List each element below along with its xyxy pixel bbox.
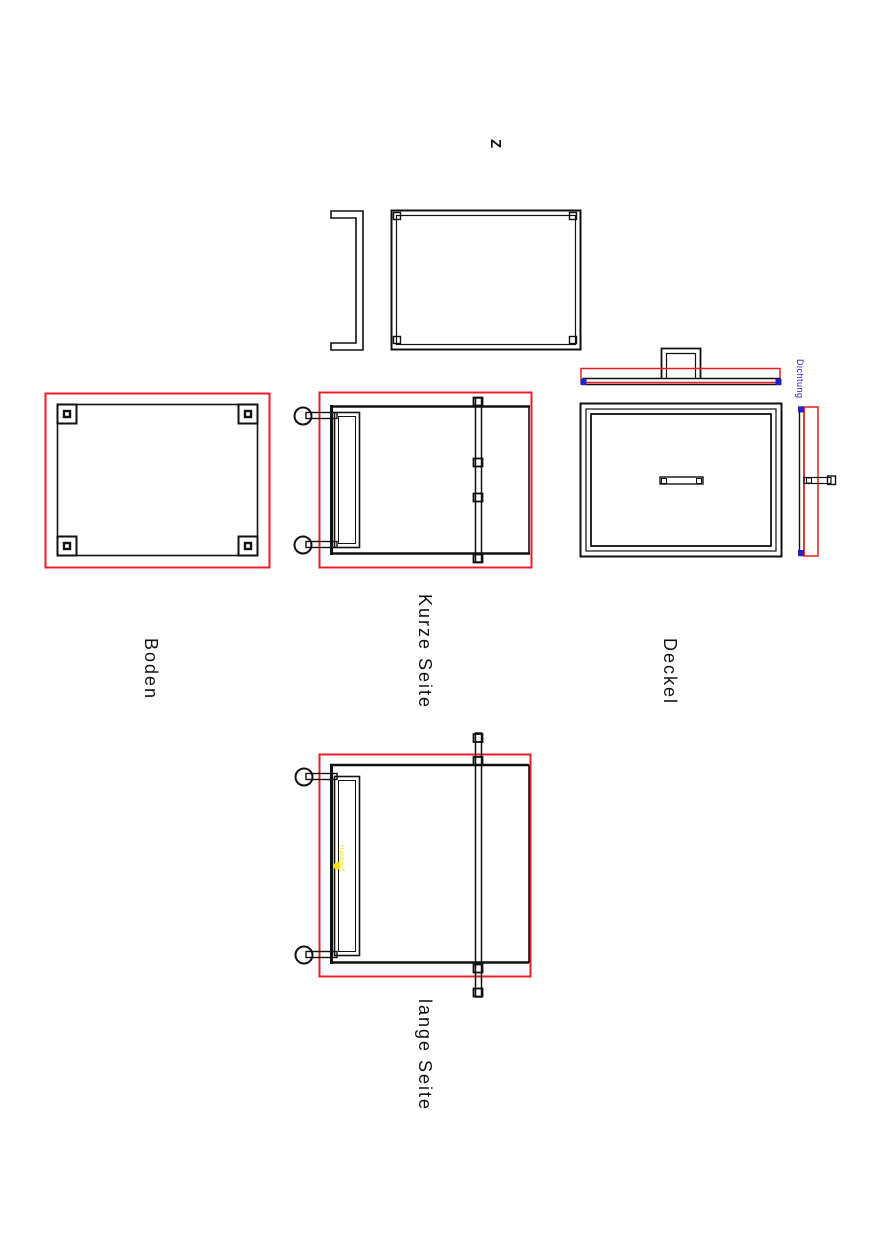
cad-drawing-page: Z	[0, 0, 875, 1240]
lid-handle-inner	[667, 354, 696, 380]
boden-view	[40, 388, 280, 578]
compass-z-label: Z	[487, 139, 504, 148]
lange-seite-caption: lange Seite	[414, 999, 435, 1111]
latch-ring	[295, 537, 312, 554]
lid-edge-profile	[583, 379, 780, 385]
side-handle-fitting	[807, 478, 812, 483]
lange-red-highlight	[320, 755, 531, 977]
foot-plate	[58, 537, 77, 556]
rim-band-inner	[339, 417, 356, 544]
top-assembly-view	[325, 205, 590, 355]
foot-plate	[58, 405, 77, 424]
hinge-bar	[476, 398, 482, 562]
foot-plate	[239, 537, 258, 556]
latch-ring	[296, 947, 313, 964]
kurze-red-highlight	[320, 393, 532, 568]
lid-mid-rect	[586, 409, 776, 551]
foot-screw	[64, 543, 70, 549]
deckel-caption: Deckel	[659, 638, 680, 705]
lid-outer-rect	[581, 404, 782, 557]
seal-marker	[581, 380, 586, 385]
boden-red-highlight	[46, 394, 270, 568]
latch-ring	[296, 769, 313, 786]
seal-marker	[799, 407, 804, 412]
kurze-seite-caption: Kurze Seite	[414, 594, 435, 709]
foot-plate	[239, 405, 258, 424]
lid-inner-rect	[591, 414, 771, 546]
hinge-bar	[476, 733, 482, 997]
body-outer-rect	[392, 211, 581, 350]
slot-end-fitting	[697, 479, 702, 484]
seal-marker	[799, 551, 804, 556]
slot-end-fitting	[662, 479, 667, 484]
boden-caption: Boden	[140, 638, 161, 700]
dichtung-label: Dichtung	[795, 359, 805, 399]
lange-seite-view	[288, 725, 543, 1007]
foot-screw	[64, 411, 70, 417]
boden-panel	[58, 405, 258, 556]
yellow-annotation-label: Handgriff	[338, 845, 344, 872]
seal-marker	[776, 380, 781, 385]
lid-edge-red-highlight	[581, 369, 780, 383]
latch-ring	[295, 408, 312, 425]
foot-screw	[245, 543, 251, 549]
foot-screw	[245, 411, 251, 417]
channel-profile	[331, 211, 363, 350]
kurze-seite-view	[288, 388, 543, 578]
body-inner-rect	[397, 216, 576, 345]
